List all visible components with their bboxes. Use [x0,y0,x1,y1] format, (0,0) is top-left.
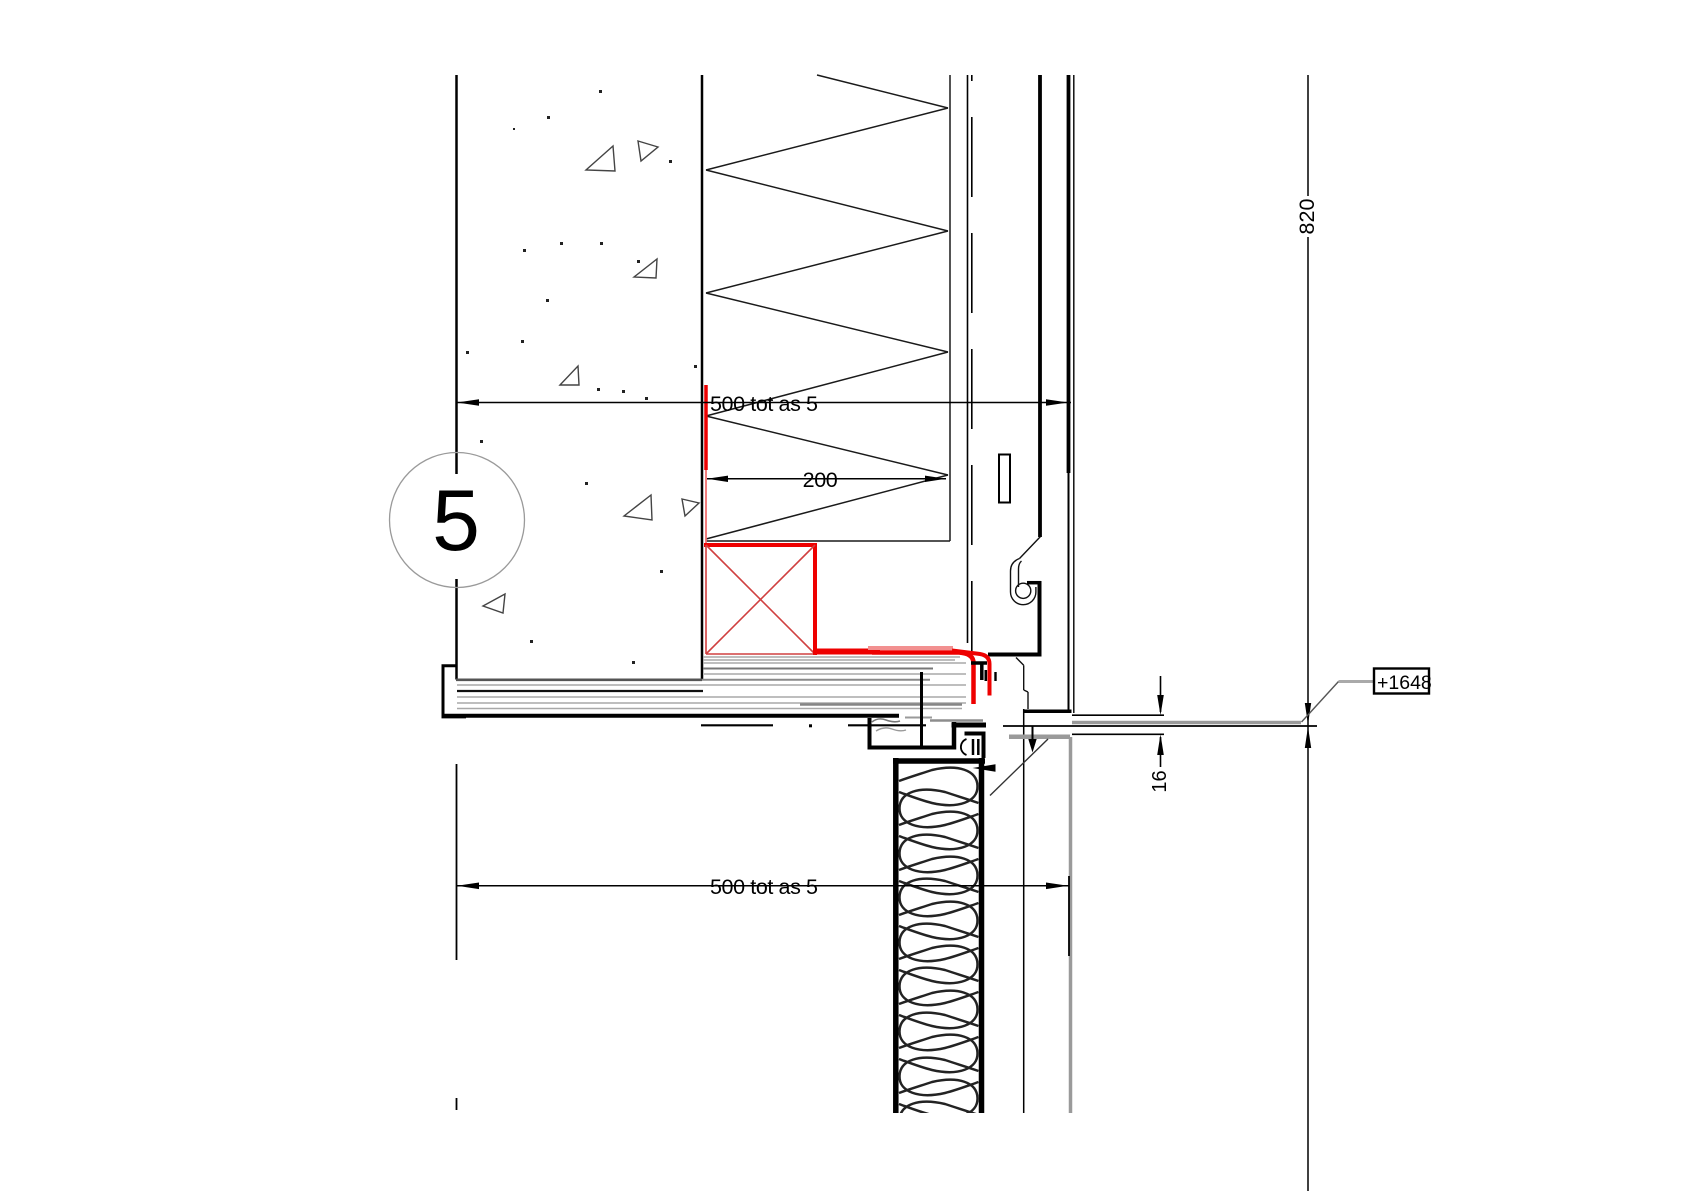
svg-text:5: 5 [432,473,480,569]
svg-text:820: 820 [1295,199,1319,235]
svg-text:500 tot as 5: 500 tot as 5 [710,392,818,416]
svg-text:16: 16 [1149,770,1171,792]
svg-text:+1648: +1648 [1377,672,1432,694]
svg-text:500 tot as 5: 500 tot as 5 [710,875,818,899]
svg-text:200: 200 [803,468,838,492]
